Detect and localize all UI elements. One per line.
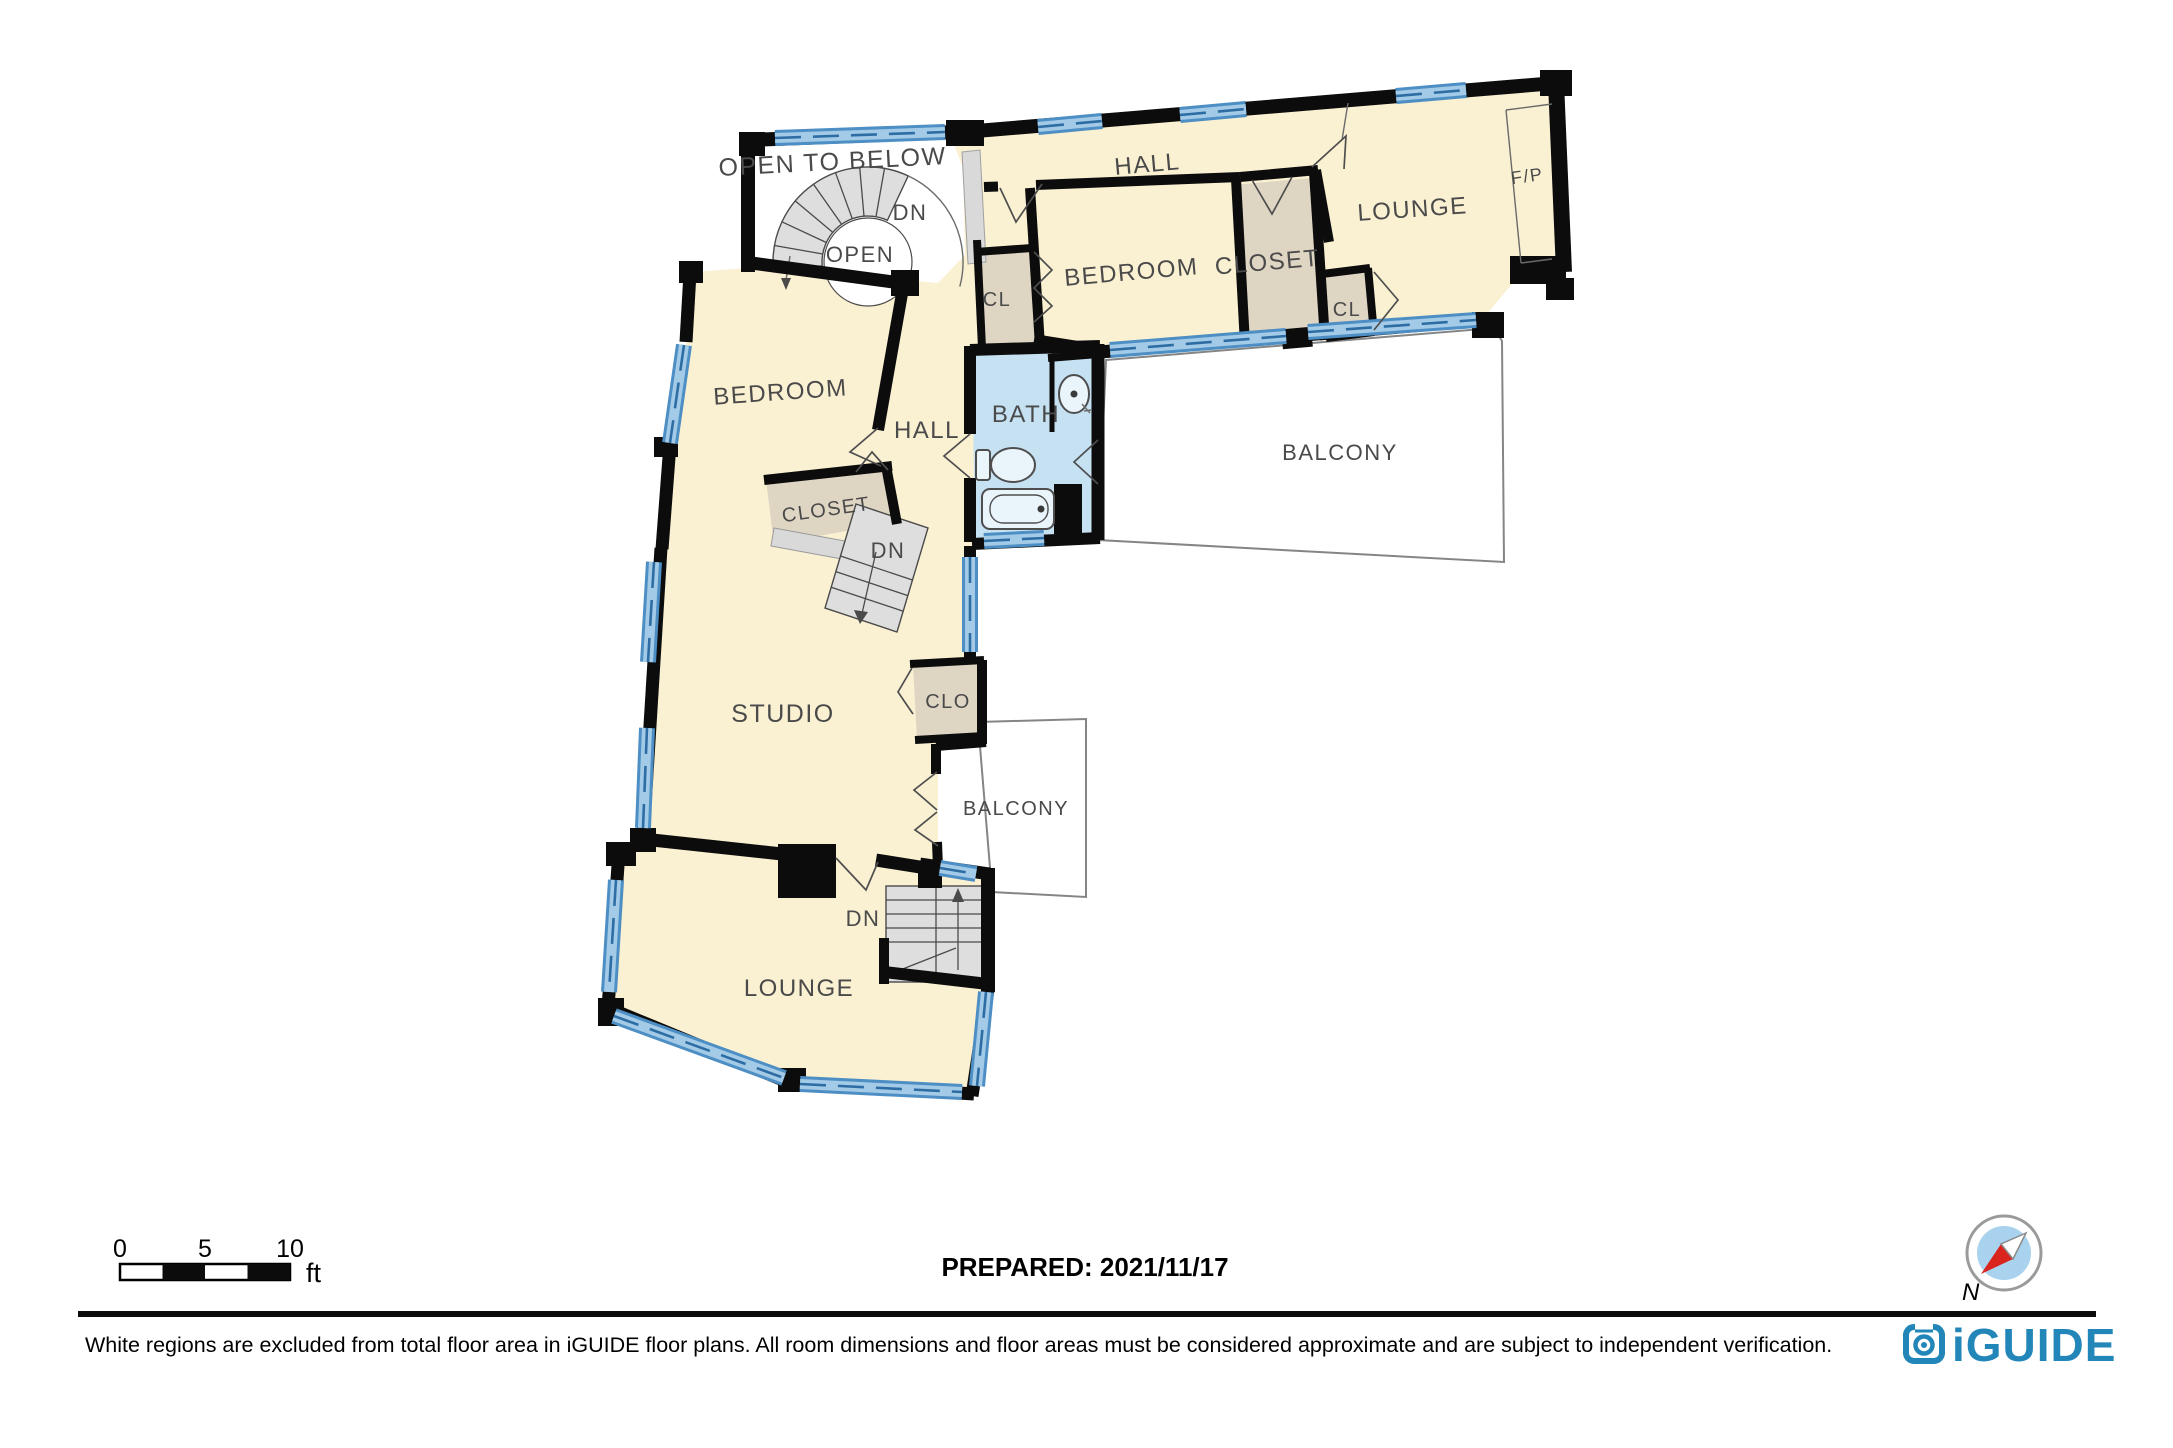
- label-dn-top: DN: [893, 200, 928, 225]
- toilet-icon: [976, 450, 990, 480]
- label-cl-right: CL: [1333, 299, 1362, 321]
- prepared-date: PREPARED: 2021/11/17: [941, 1252, 1228, 1282]
- compass-icon: N: [1962, 1216, 2041, 1306]
- label-balcony-top: BALCONY: [1282, 440, 1398, 465]
- floorplan-svg: OPEN TO BELOW DN OPEN HALL BEDROOM CLOSE…: [0, 0, 2173, 1448]
- label-lounge-low: LOUNGE: [744, 975, 854, 1002]
- scale-tick-10: 10: [276, 1235, 304, 1263]
- bottom-stairs: [886, 886, 984, 982]
- label-clo: CLO: [925, 691, 971, 713]
- label-hall-top: HALL: [1113, 148, 1181, 181]
- iguide-logo: iGUIDE: [1906, 1319, 2116, 1371]
- scale-unit: ft: [306, 1258, 322, 1288]
- scale-tick-5: 5: [198, 1235, 212, 1263]
- iguide-camera-icon: [1906, 1322, 1942, 1361]
- compass-north-label: N: [1962, 1279, 1980, 1306]
- scale-tick-0: 0: [113, 1235, 127, 1263]
- disclaimer-text: White regions are excluded from total fl…: [85, 1333, 1832, 1357]
- scale-bar: 0 5 10 ft: [113, 1235, 321, 1288]
- label-dn-low: DN: [846, 906, 881, 931]
- footer-divider: [78, 1311, 2096, 1317]
- label-hall-mid: HALL: [894, 417, 960, 444]
- label-bath: BATH: [992, 401, 1060, 428]
- label-cl-left: CL: [983, 289, 1012, 311]
- floorplan-page: OPEN TO BELOW DN OPEN HALL BEDROOM CLOSE…: [0, 0, 2173, 1448]
- label-dn-mid: DN: [871, 538, 906, 563]
- label-open: OPEN: [826, 242, 894, 267]
- iguide-wordmark: iGUIDE: [1952, 1319, 2116, 1371]
- label-studio: STUDIO: [731, 700, 834, 728]
- label-balcony-low: BALCONY: [963, 798, 1069, 820]
